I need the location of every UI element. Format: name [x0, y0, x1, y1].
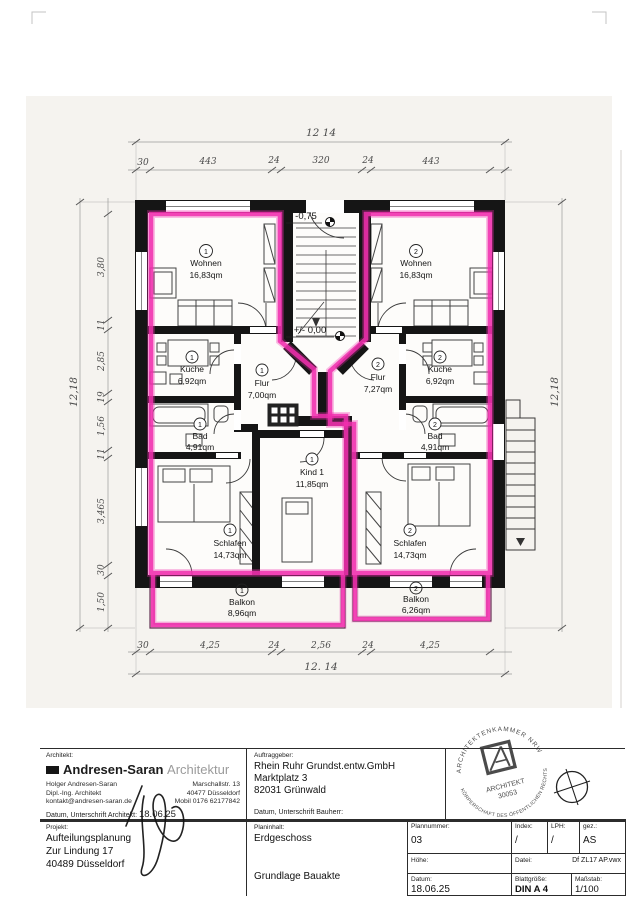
room-area: 14,73qm — [213, 550, 246, 560]
dim-left-seg-0: 3,80 — [97, 257, 107, 277]
plan-content-title: Erdgeschoss — [254, 833, 312, 844]
room-unit: 1 — [190, 355, 194, 362]
room-area: 11,85qm — [296, 479, 328, 489]
floor-plan: -0,75 +/- 0,00 1Wohnen16,83qm 2Wohnen16,… — [0, 0, 637, 740]
room-name: Flur — [371, 372, 386, 382]
room-area: 7,27qm — [364, 384, 392, 394]
room-area: 6,92qm — [426, 376, 454, 386]
dim-bottom-total: 12. 14 — [304, 661, 337, 673]
level-upper-label: -0,75 — [295, 211, 317, 222]
dim-top-seg-4: 24 — [361, 156, 374, 166]
firm-name: Andresen-Saran Architektur — [46, 762, 229, 777]
room-name: Küche — [180, 364, 204, 374]
dim-top-total: 12 14 — [306, 127, 336, 139]
room-unit: 1 — [198, 422, 202, 429]
project-city: 40489 Düsseldorf — [46, 859, 124, 870]
blattgroesse-label: Blattgröße: — [515, 876, 547, 883]
stamp-logo — [482, 741, 515, 773]
dim-bot-seg-1: 4,25 — [199, 641, 220, 651]
room-area: 16,83qm — [189, 270, 222, 280]
project-street: Zur Lindung 17 — [46, 846, 113, 857]
dim-left-seg-4: 1,56 — [97, 416, 107, 436]
architect-email: kontakt@andresen-saran.de — [46, 798, 132, 807]
room-name: Flur — [255, 378, 270, 388]
project-name: Aufteilungsplanung — [46, 833, 131, 844]
dim-top-seg-0: 30 — [137, 158, 149, 168]
architect-label: Architekt: — [46, 752, 73, 759]
client-city: 82031 Grünwald — [254, 785, 326, 796]
room-unit: 1 — [260, 368, 264, 375]
room-area: 8,96qm — [228, 608, 256, 618]
room-name: Kind 1 — [300, 467, 324, 477]
dim-left-seg-7: 30 — [97, 564, 107, 576]
room-name: Schlafen — [213, 538, 246, 548]
dim-bot-seg-5: 4,25 — [419, 641, 440, 651]
room-area: 7,00qm — [248, 390, 276, 400]
architect-title: Dipl.-Ing. Architekt — [46, 790, 132, 799]
room-name: Wohnen — [400, 258, 432, 268]
datum-value: 18.06.25 — [411, 884, 450, 895]
room-unit: 1 — [228, 528, 232, 535]
dim-right-total: 12,18 — [549, 377, 561, 407]
dim-top-seg-3: 320 — [312, 156, 329, 166]
room-unit: 2 — [414, 586, 418, 593]
dim-top-seg-5: 443 — [421, 157, 439, 167]
client-label: Auftraggeber: — [254, 752, 293, 759]
room-name: Bad — [192, 431, 207, 441]
firm-name-bold: Andresen-Saran — [63, 762, 163, 777]
plan-content-subtitle: Grundlage Bauakte — [254, 871, 340, 882]
firm-logo-mark — [46, 766, 59, 774]
dim-bot-seg-2: 24 — [267, 641, 280, 651]
client-name: Rhein Ruhr Grundst.entw.GmbH — [254, 761, 395, 772]
plannummer-label: Plannummer: — [411, 823, 450, 830]
room-area: 6,26qm — [402, 605, 430, 615]
dim-bot-seg-0: 30 — [137, 641, 149, 651]
lph-value: / — [551, 835, 554, 846]
room-area: 4,91qm — [186, 442, 214, 452]
hoehe-label: Höhe: — [411, 857, 428, 864]
room-name: Küche — [428, 364, 452, 374]
room-name: Balkon — [403, 594, 429, 604]
room-unit: 2 — [438, 355, 442, 362]
room-unit: 1 — [240, 588, 244, 595]
client-street: Marktplatz 3 — [254, 773, 307, 784]
room-unit: 2 — [408, 528, 412, 535]
dim-left-seg-8: 1,50 — [97, 592, 107, 612]
room-name: Wohnen — [190, 258, 222, 268]
signature — [120, 780, 250, 888]
massstab-label: Maßstab: — [575, 876, 602, 883]
project-label: Projekt: — [46, 824, 68, 831]
plan-content-label: Planinhalt: — [254, 824, 284, 831]
dim-bot-seg-3: 2,56 — [310, 641, 331, 651]
room-unit: 2 — [376, 362, 380, 369]
room-area: 4,91qm — [421, 442, 449, 452]
dim-left-seg-5: 11 — [97, 448, 107, 459]
dim-top-seg-2: 24 — [267, 156, 280, 166]
gez-label: gez.: — [583, 823, 597, 830]
blattgroesse-value: DIN A 4 — [515, 884, 548, 895]
room-area: 14,73qm — [393, 550, 426, 560]
firm-name-light: Architektur — [167, 762, 229, 777]
room-area: 6,92qm — [178, 376, 206, 386]
room-unit: 1 — [204, 249, 208, 256]
room-unit: 1 — [310, 457, 314, 464]
datei-value: Df ZL17 AP.vwx — [511, 857, 621, 864]
room-area: 16,83qm — [399, 270, 432, 280]
room-unit: 2 — [433, 422, 437, 429]
level-ground-label: +/- 0,00 — [294, 325, 326, 336]
architect-address-left: Holger Andresen-Saran Dipl.-Ing. Archite… — [46, 781, 132, 807]
client-signature-row: Datum, Unterschrift Bauherr: — [254, 809, 343, 816]
plannummer-value: 03 — [411, 835, 422, 846]
architect-chamber-stamp: ARCHITEKTENKAMMER NRW KÖRPERSCHAFT DES Ö… — [445, 708, 563, 826]
dim-top-seg-1: 443 — [198, 157, 216, 167]
dim-left-seg-6: 3,465 — [97, 498, 107, 524]
dim-left-seg-3: 19 — [97, 391, 107, 403]
gez-value: AS — [583, 835, 596, 846]
room-name: Bad — [427, 431, 442, 441]
room-name: Balkon — [229, 597, 255, 607]
shaft — [268, 404, 298, 426]
dim-left-total: 12,18 — [68, 377, 80, 407]
dim-left-seg-2: 2,85 — [97, 351, 107, 372]
crosshair-icon — [551, 766, 593, 808]
massstab-value: 1/100 — [575, 884, 599, 895]
exterior-stair — [506, 400, 535, 550]
dim-left-seg-1: 11 — [97, 319, 107, 330]
architect-name: Holger Andresen-Saran — [46, 781, 132, 790]
room-unit: 2 — [414, 249, 418, 256]
dim-bot-seg-4: 24 — [361, 641, 374, 651]
room-name: Schlafen — [393, 538, 426, 548]
datum-label: Datum: — [411, 876, 432, 883]
index-value: / — [515, 835, 518, 846]
